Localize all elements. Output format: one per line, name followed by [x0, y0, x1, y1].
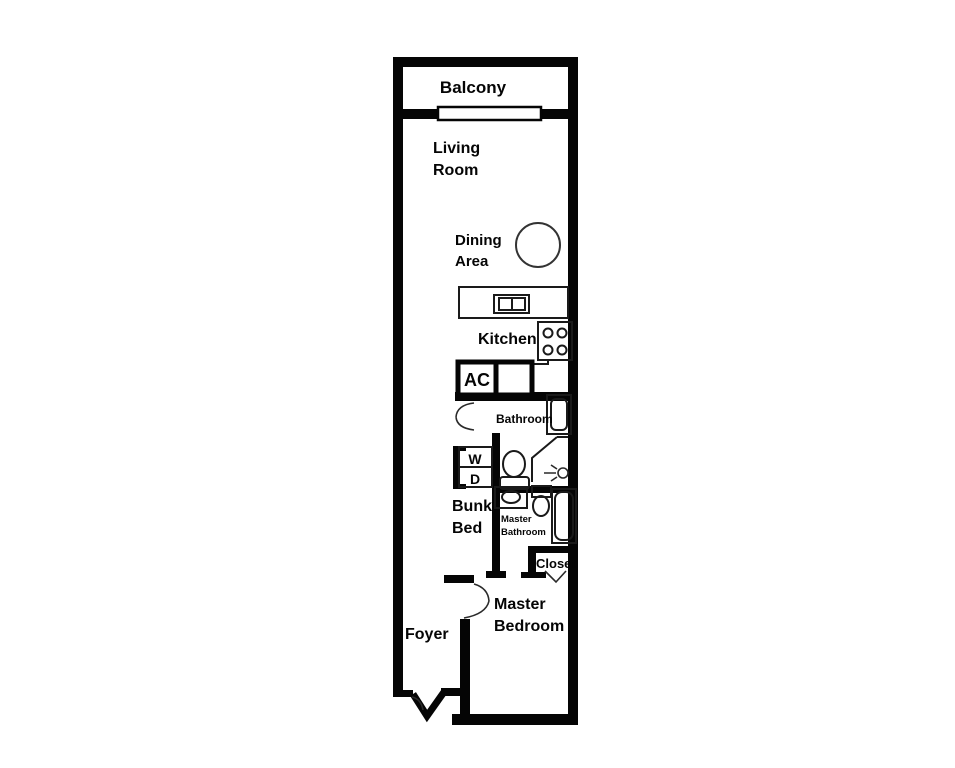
dryer-label: D — [470, 471, 480, 487]
master-bedroom-label-line2: Bedroom — [494, 618, 564, 635]
shower-head-icon — [544, 465, 568, 481]
master-bedroom-door-icon — [464, 584, 489, 618]
sliding-door-icon — [438, 107, 541, 120]
living-room-label-line1: Living — [433, 140, 480, 157]
dining-table-icon — [516, 223, 560, 267]
wall-left — [393, 57, 403, 697]
wall-masterbedroom-top — [444, 575, 474, 583]
foyer-label: Foyer — [405, 626, 449, 643]
master-bathroom-label-line1: Master — [501, 514, 532, 525]
balcony-label: Balcony — [440, 78, 507, 97]
stove-burner — [544, 346, 553, 355]
washer-label: W — [468, 451, 482, 467]
floor-plan: Balcony Living Room Dining Area Kitchen … — [0, 0, 955, 768]
wall-entry-notch — [413, 692, 444, 716]
kitchen-sink-basin-left — [499, 298, 512, 310]
wall-masterbedroom-left — [460, 619, 470, 719]
kitchen-sink-basin-right — [512, 298, 525, 310]
wall-hall-foot — [486, 571, 506, 578]
bathtub-basin — [551, 399, 567, 430]
living-room-label-line2: Room — [433, 162, 478, 179]
floor-plan-canvas: Balcony Living Room Dining Area Kitchen … — [0, 0, 955, 768]
stove-burner — [544, 329, 553, 338]
stove-icon — [538, 322, 572, 360]
dining-area-label-line1: Dining — [455, 232, 502, 249]
wall-closet-foot — [521, 572, 546, 578]
bunk-bed-label-line1: Bunk — [452, 498, 492, 515]
wall-foyer-stub — [393, 690, 413, 697]
wall-entry-right-stub — [441, 688, 462, 696]
closet-door-icon — [545, 571, 566, 582]
bunk-bed-label-line2: Bed — [452, 520, 482, 537]
shower-enclosure-icon — [532, 437, 568, 482]
master-bathroom-label-line2: Bathroom — [501, 527, 546, 538]
bathroom-label: Bathroom — [496, 412, 553, 426]
master-toilet-bowl-icon — [533, 496, 549, 516]
wall-right — [568, 57, 578, 725]
ac-label: AC — [464, 370, 490, 390]
closet-label: Closet — [536, 556, 576, 571]
kitchen-label: Kitchen — [478, 331, 537, 348]
master-bedroom-label-line1: Master — [494, 596, 546, 613]
stove-burner — [558, 346, 567, 355]
dining-area-label-line2: Area — [455, 253, 489, 270]
toilet-bowl-icon — [503, 451, 525, 477]
refrigerator-icon — [496, 362, 532, 395]
wall-bottom — [452, 714, 578, 725]
bathroom-door-icon — [456, 403, 474, 430]
wall-top — [393, 57, 578, 67]
stove-burner — [558, 329, 567, 338]
